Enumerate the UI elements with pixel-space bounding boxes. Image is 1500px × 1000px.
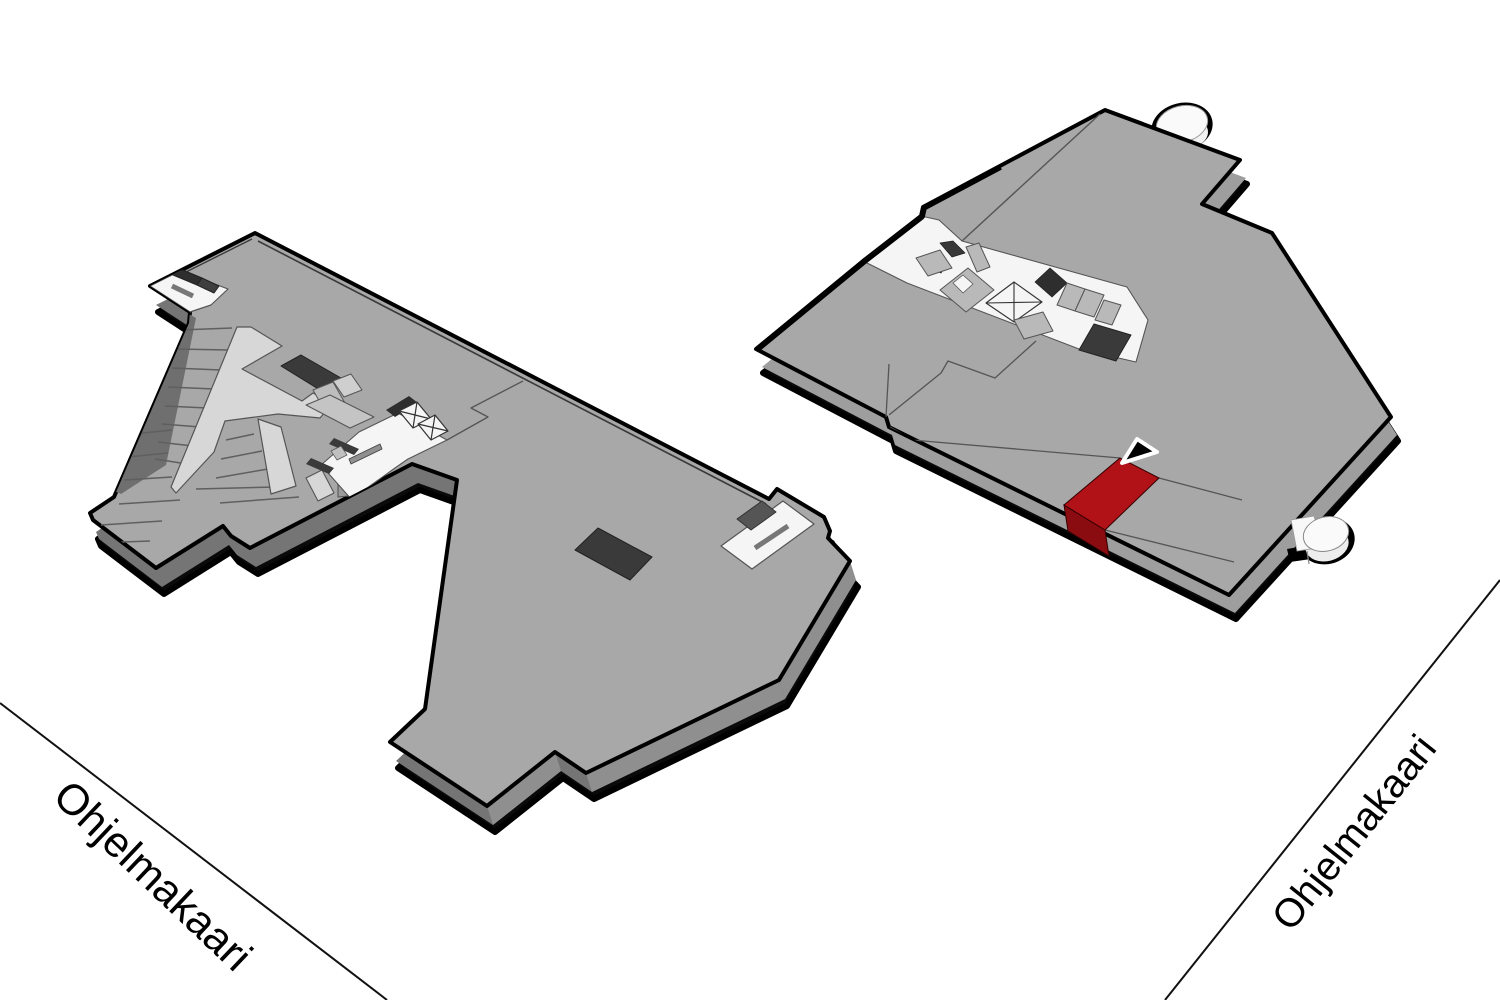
svg-text:Ohjelmakaari: Ohjelmakaari [1264,727,1445,939]
svg-text:Ohjelmakaari: Ohjelmakaari [44,771,261,980]
